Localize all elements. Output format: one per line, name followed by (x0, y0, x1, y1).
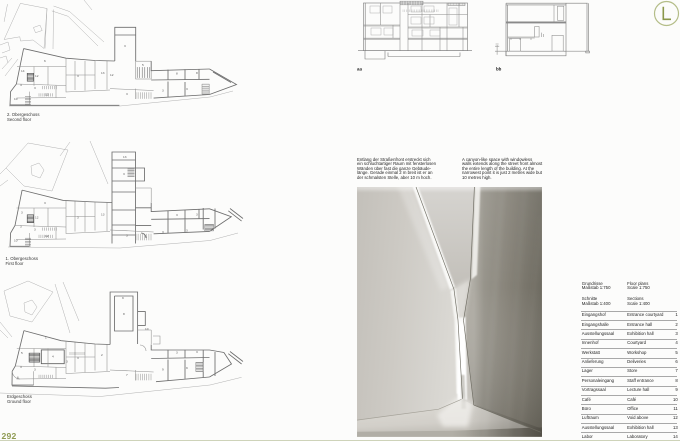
svg-text:14: 14 (21, 69, 25, 73)
svg-text:12: 12 (110, 73, 114, 77)
svg-text:3: 3 (34, 368, 36, 372)
svg-text:4: 4 (20, 83, 22, 87)
svg-text:2: 2 (101, 353, 103, 357)
svg-text:3: 3 (34, 228, 36, 232)
svg-text:3: 3 (123, 172, 125, 176)
svg-text:5: 5 (21, 351, 23, 355)
svg-text:bb: bb (496, 67, 502, 72)
svg-text:3: 3 (20, 225, 22, 229)
svg-text:3: 3 (162, 230, 164, 234)
svg-text:3: 3 (21, 211, 23, 215)
svg-text:3: 3 (77, 74, 79, 78)
svg-text:3: 3 (186, 87, 188, 91)
svg-text:9: 9 (122, 296, 124, 300)
svg-text:10: 10 (14, 97, 18, 101)
svg-text:3: 3 (77, 216, 79, 220)
svg-text:3: 3 (124, 44, 126, 48)
svg-text:8: 8 (196, 71, 198, 75)
svg-text:3: 3 (126, 92, 128, 96)
svg-text:12: 12 (45, 234, 49, 238)
svg-text:9: 9 (186, 366, 188, 370)
svg-text:3: 3 (186, 229, 188, 233)
svg-text:10: 10 (14, 239, 18, 243)
svg-text:8: 8 (176, 72, 178, 76)
svg-text:3: 3 (196, 213, 198, 217)
svg-text:3: 3 (77, 356, 79, 360)
svg-text:13: 13 (101, 213, 105, 217)
svg-text:3: 3 (176, 351, 178, 355)
svg-text:3: 3 (126, 234, 128, 238)
svg-text:4: 4 (52, 355, 54, 359)
svg-text:12: 12 (45, 93, 49, 97)
svg-text:3: 3 (34, 86, 36, 90)
svg-text:3: 3 (176, 213, 178, 217)
svg-text:13: 13 (123, 155, 127, 159)
svg-text:1: 1 (45, 336, 47, 340)
svg-text:3: 3 (20, 365, 22, 369)
svg-text:12: 12 (35, 216, 39, 220)
svg-text:5: 5 (142, 63, 144, 67)
svg-text:9: 9 (162, 368, 164, 372)
svg-text:12: 12 (35, 74, 39, 78)
svg-text:3: 3 (66, 360, 68, 364)
svg-text:7: 7 (126, 373, 128, 377)
svg-text:8: 8 (123, 312, 125, 316)
svg-text:6: 6 (44, 59, 46, 63)
svg-text:3: 3 (44, 201, 46, 205)
svg-text:6: 6 (17, 376, 19, 380)
svg-text:10: 10 (145, 327, 149, 331)
svg-text:13: 13 (101, 71, 105, 75)
svg-text:3: 3 (196, 350, 198, 354)
svg-text:3: 3 (162, 89, 164, 93)
svg-text:aa: aa (357, 67, 362, 72)
